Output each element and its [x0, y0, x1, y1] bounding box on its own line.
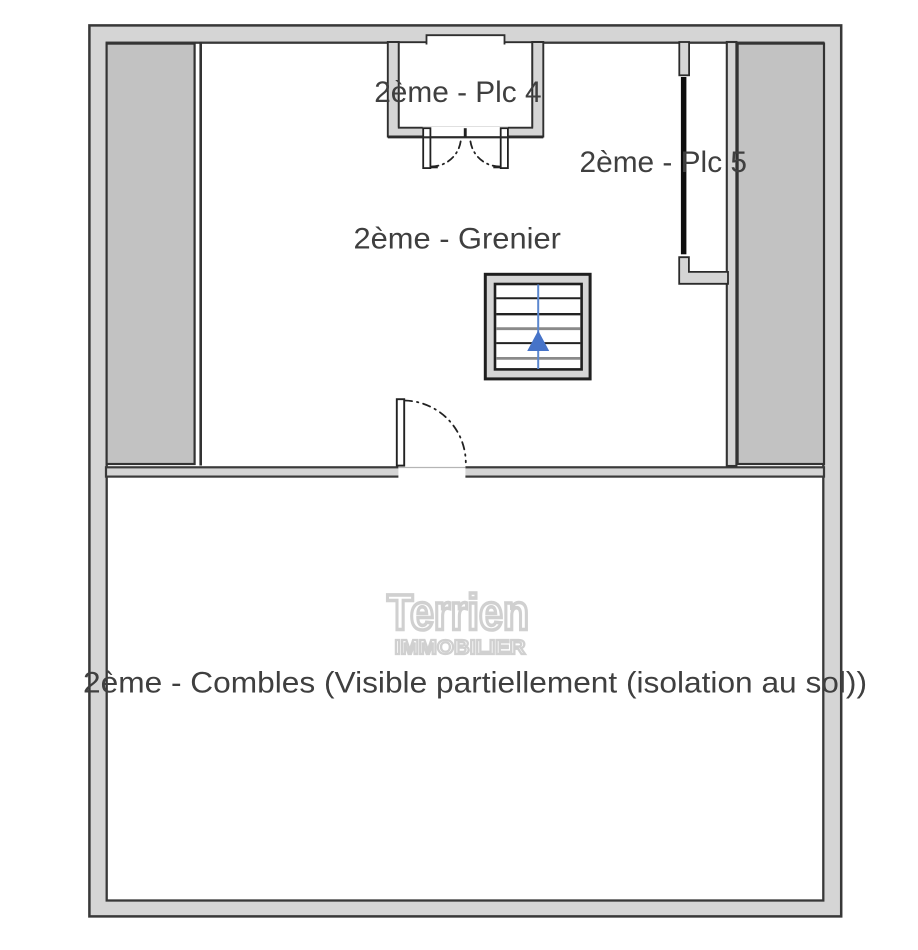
svg-text:2ème - Grenier: 2ème - Grenier — [354, 223, 561, 256]
svg-text:Terrien: Terrien — [387, 585, 529, 641]
svg-text:2ème - Plc 5: 2ème - Plc 5 — [580, 146, 748, 179]
svg-text:2ème - Combles (Visible partie: 2ème - Combles (Visible partiellement (i… — [83, 667, 867, 700]
svg-text:2ème - Plc 4: 2ème - Plc 4 — [374, 76, 541, 109]
svg-text:IMMOBILIER: IMMOBILIER — [395, 636, 526, 659]
